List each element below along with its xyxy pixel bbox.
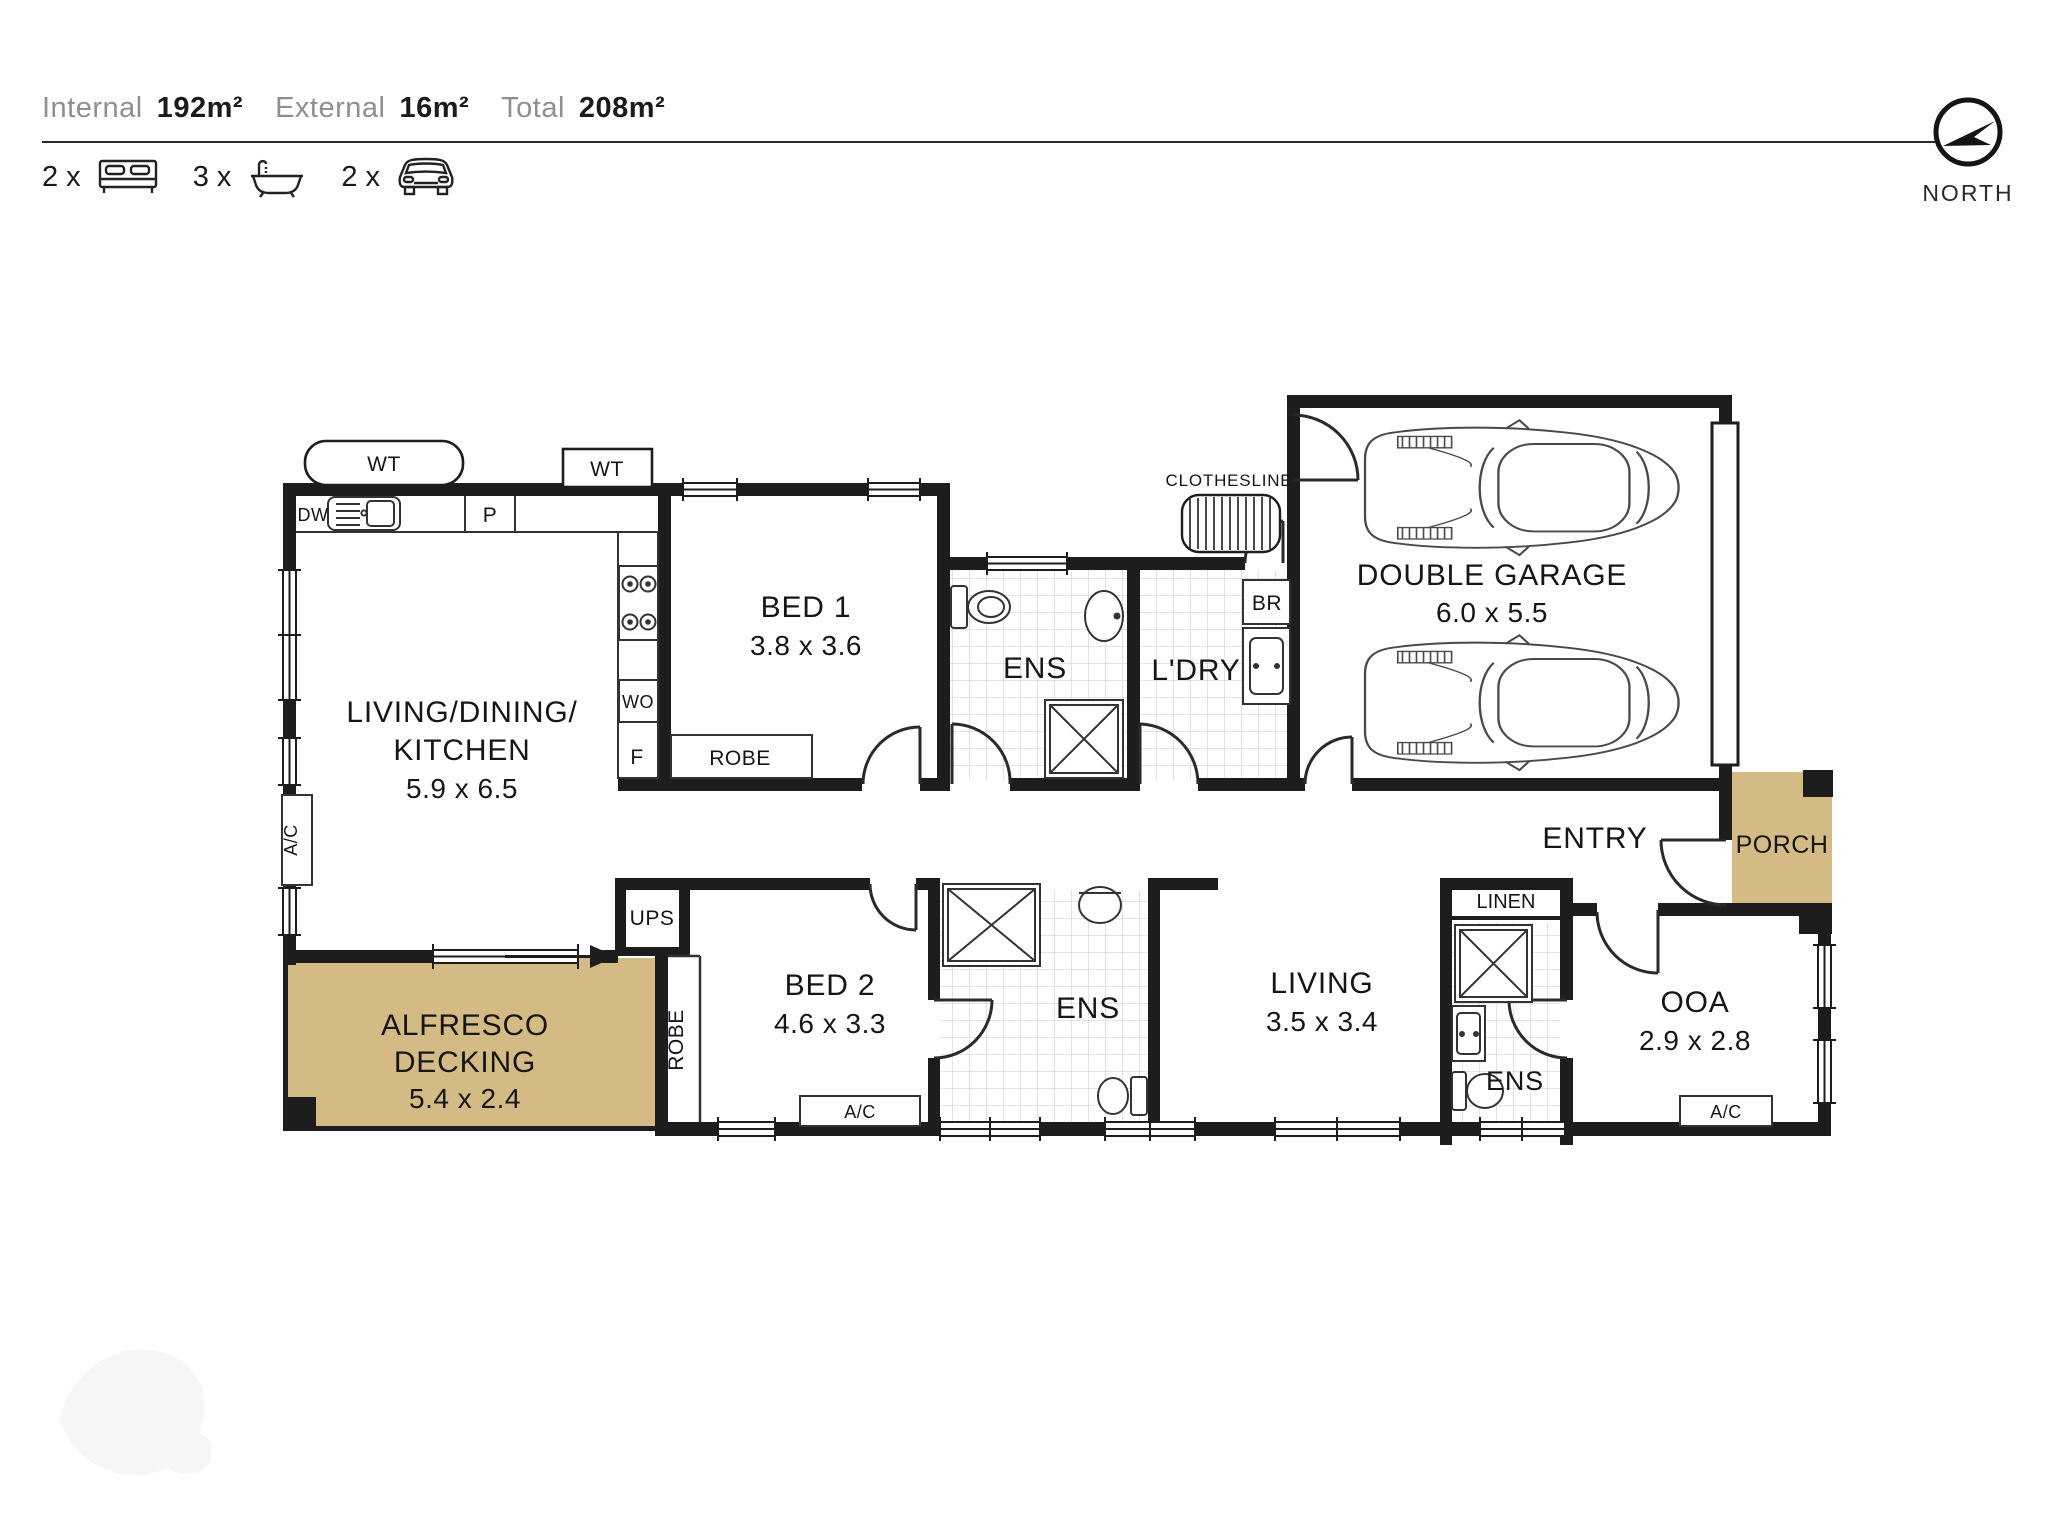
window xyxy=(718,1117,775,1141)
wall-segment xyxy=(1352,778,1732,791)
wall-segment xyxy=(1719,772,1732,840)
toilet xyxy=(1098,1077,1147,1115)
window xyxy=(868,478,920,501)
ens1-label: ENS xyxy=(1003,652,1067,685)
laundry-label: L'DRY xyxy=(1151,654,1240,687)
bed1-dims: 3.8 x 3.6 xyxy=(750,630,862,661)
car-top-view xyxy=(1365,420,1679,555)
wall-segment xyxy=(1140,557,1245,570)
broom-label: BR xyxy=(1252,592,1282,615)
window xyxy=(1275,1117,1400,1141)
window xyxy=(278,738,301,785)
ac-label: A/C xyxy=(281,824,301,856)
wall-segment xyxy=(1198,778,1287,791)
wall-segment xyxy=(658,483,671,790)
pantry-label: P xyxy=(483,504,498,527)
wall-segment xyxy=(679,878,690,955)
wall-segment xyxy=(928,878,940,1000)
ooa-label: OOA xyxy=(1660,986,1729,1019)
wall-segment xyxy=(1452,916,1560,920)
window xyxy=(1813,1040,1836,1103)
bed2-label: BED 2 xyxy=(785,969,876,1002)
wall-segment xyxy=(615,947,690,956)
clothesline-label: CLOTHESLINE xyxy=(1166,471,1293,490)
ups-label: UPS xyxy=(630,907,675,930)
door-bed2 xyxy=(870,884,916,930)
wt-label: WT xyxy=(367,453,401,476)
entry-label: ENTRY xyxy=(1542,822,1647,855)
living-dims: 3.5 x 3.4 xyxy=(1266,1006,1378,1037)
shower xyxy=(1455,925,1532,1002)
door-bed1 xyxy=(863,727,920,784)
porch-label: PORCH xyxy=(1736,831,1829,859)
ldk-label: KITCHEN xyxy=(393,734,530,767)
window xyxy=(1813,945,1836,1008)
outdoor-items xyxy=(305,441,1280,552)
basin xyxy=(1079,887,1121,923)
window xyxy=(278,888,301,935)
basin xyxy=(1085,591,1123,641)
deck-post xyxy=(285,1097,316,1128)
clothesline xyxy=(1182,495,1280,552)
living-label: LIVING xyxy=(1270,967,1373,1000)
wall-segment xyxy=(283,950,433,963)
bench-column xyxy=(618,532,658,778)
linen-label: LINEN xyxy=(1477,891,1536,913)
wall-segment xyxy=(1010,778,1140,791)
alfresco-dims: 5.4 x 2.4 xyxy=(409,1083,521,1114)
robe-label: ROBE xyxy=(665,1009,688,1071)
wall-segment xyxy=(1148,878,1160,1125)
wall-segment xyxy=(618,778,862,791)
wall-segment xyxy=(920,778,950,791)
window xyxy=(278,570,301,700)
ac-label: A/C xyxy=(844,1102,876,1122)
ldk-label: LIVING/DINING/ xyxy=(346,696,577,729)
wall-segment xyxy=(1440,878,1452,1145)
floor-plan: LIVING/DINING/ KITCHEN 5.9 x 6.5 BED 1 3… xyxy=(0,0,2048,1536)
robe-label: ROBE xyxy=(709,747,771,770)
wall-segment xyxy=(928,1058,940,1125)
garage-dims: 6.0 x 5.5 xyxy=(1436,597,1548,628)
window xyxy=(683,478,737,501)
ens3-label: ENS xyxy=(1486,1066,1544,1096)
wall-segment xyxy=(1560,878,1573,1000)
wall-segment xyxy=(615,878,870,890)
laundry-trough xyxy=(1243,628,1290,704)
wall-segment xyxy=(1287,778,1305,791)
vanity xyxy=(1452,1006,1485,1061)
garage-cars xyxy=(1365,420,1679,770)
ooa-dims: 2.9 x 2.8 xyxy=(1639,1025,1751,1056)
fridge-label: F xyxy=(630,746,643,769)
car-top-view xyxy=(1365,635,1679,770)
wall-segment xyxy=(1148,878,1218,890)
sink xyxy=(328,497,400,530)
door-front-entry xyxy=(1661,840,1726,905)
watermark xyxy=(60,1349,212,1475)
door-garage-internal xyxy=(1305,737,1352,784)
wall-segment xyxy=(1127,557,1140,790)
bed1-label: BED 1 xyxy=(761,591,852,624)
ac-label: A/C xyxy=(1710,1102,1742,1122)
shower xyxy=(1045,700,1123,778)
bed2-dims: 4.6 x 3.3 xyxy=(774,1008,886,1039)
garage-door xyxy=(1712,423,1738,765)
wo-label: WO xyxy=(622,692,654,712)
wall-segment xyxy=(937,483,950,790)
alfresco-label: DECKING xyxy=(394,1046,536,1079)
garage-label: DOUBLE GARAGE xyxy=(1357,559,1627,592)
door-garage-rear xyxy=(1293,415,1358,480)
dw-label: DW xyxy=(298,505,329,525)
wall-segment xyxy=(1287,395,1732,408)
door-ooa xyxy=(1597,910,1658,973)
wall-segment xyxy=(1440,878,1573,890)
wt-label: WT xyxy=(590,458,624,481)
alfresco-label: ALFRESCO xyxy=(381,1009,549,1042)
ldk-dims: 5.9 x 6.5 xyxy=(406,773,518,804)
ens2-label: ENS xyxy=(1056,992,1120,1025)
wall-segment xyxy=(1573,903,1597,916)
wall-segment xyxy=(615,878,626,955)
porch-post xyxy=(1803,770,1833,797)
shower xyxy=(943,884,1040,966)
cooktop xyxy=(619,566,658,640)
